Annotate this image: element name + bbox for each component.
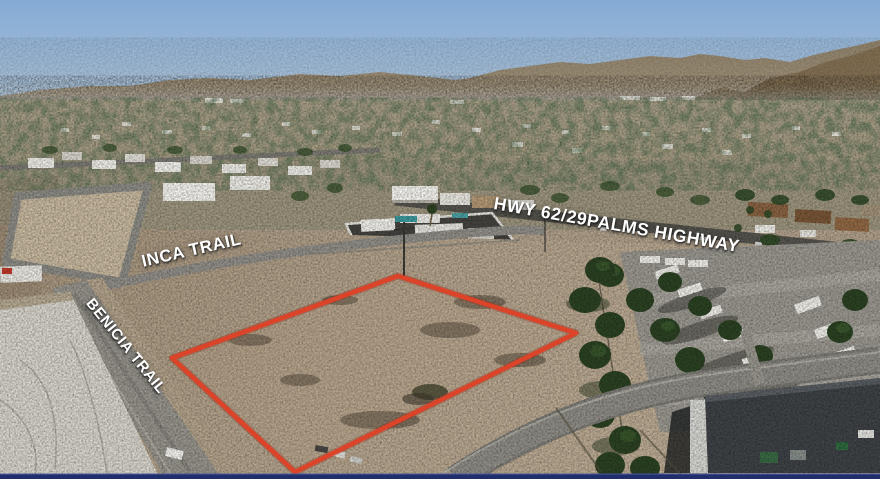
screenshot: INCA TRAIL BENICIA TRAIL HWY 62/29PALMS … [0,0,880,479]
aerial-photo [0,0,880,479]
bottom-border-highlight [0,474,880,475]
bottom-border-bar [0,474,880,479]
